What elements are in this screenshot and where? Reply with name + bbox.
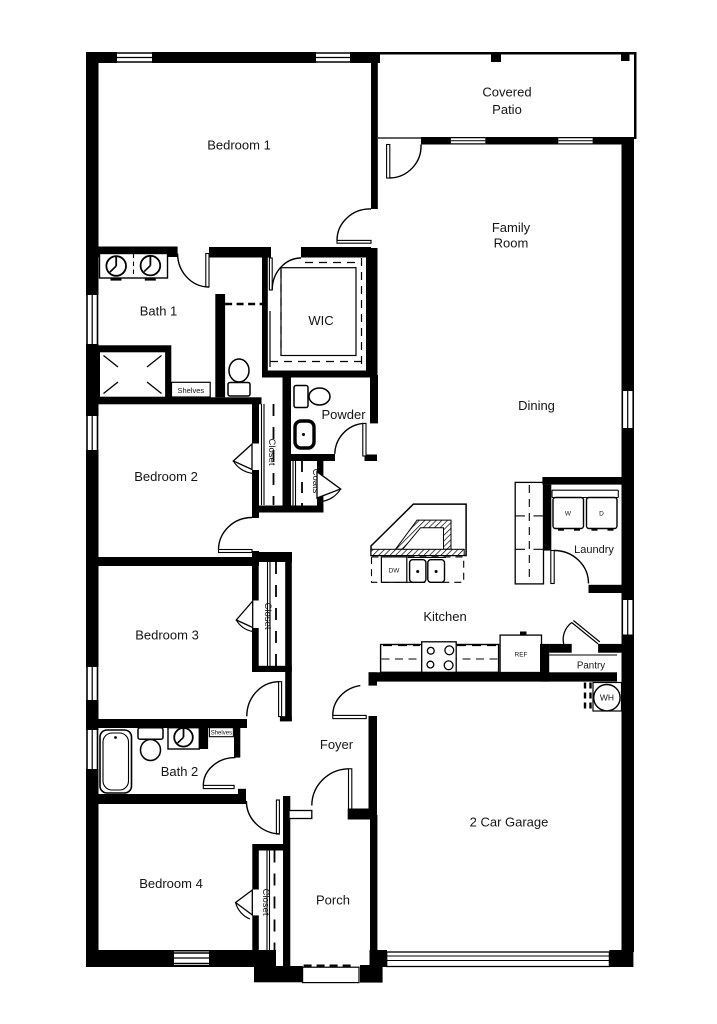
svg-text:Closet: Closet	[260, 889, 271, 916]
svg-text:WIC: WIC	[308, 313, 333, 328]
svg-text:Closet: Closet	[262, 603, 273, 630]
svg-text:Laundry: Laundry	[574, 544, 614, 556]
svg-text:Porch: Porch	[316, 893, 350, 908]
svg-text:2 Car Garage: 2 Car Garage	[470, 815, 549, 830]
svg-text:Patio: Patio	[492, 102, 522, 117]
svg-text:Shelves: Shelves	[177, 386, 204, 395]
svg-text:Bedroom 2: Bedroom 2	[134, 469, 198, 484]
svg-text:Bedroom 3: Bedroom 3	[135, 628, 199, 643]
svg-text:Shelves: Shelves	[211, 731, 232, 737]
svg-text:Pantry: Pantry	[577, 660, 605, 671]
svg-text:Bath 1: Bath 1	[140, 304, 178, 319]
svg-text:REF: REF	[515, 652, 528, 659]
svg-text:Family: Family	[492, 220, 531, 235]
svg-text:Powder: Powder	[321, 407, 366, 422]
svg-text:Room: Room	[494, 236, 529, 251]
svg-text:D: D	[599, 511, 604, 518]
svg-text:WH: WH	[600, 693, 614, 703]
svg-text:Bedroom 1: Bedroom 1	[207, 138, 271, 153]
svg-text:Closet: Closet	[266, 439, 277, 466]
svg-text:DW: DW	[389, 568, 401, 575]
svg-text:W: W	[565, 511, 572, 518]
svg-text:Foyer: Foyer	[320, 737, 354, 752]
svg-text:Bedroom 4: Bedroom 4	[139, 876, 203, 891]
svg-text:Dining: Dining	[518, 398, 555, 413]
svg-text:Kitchen: Kitchen	[423, 609, 466, 624]
svg-text:Covered: Covered	[482, 85, 531, 100]
svg-text:Bath 2: Bath 2	[161, 764, 199, 779]
